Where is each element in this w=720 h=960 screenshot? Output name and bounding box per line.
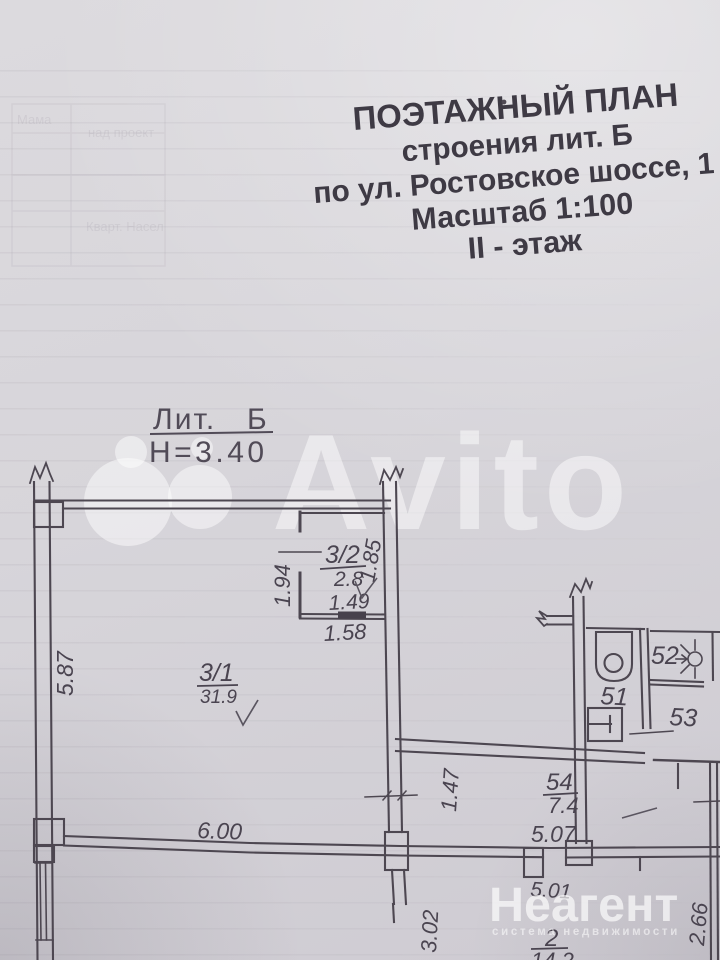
svg-text:7.4: 7.4: [548, 793, 579, 818]
svg-text:51: 51: [600, 682, 629, 711]
svg-text:1.49: 1.49: [328, 590, 370, 615]
svg-text:3.02: 3.02: [416, 909, 443, 953]
svg-text:Кварт. Насел: Кварт. Насел: [86, 219, 164, 234]
svg-text:2.66: 2.66: [684, 901, 713, 948]
svg-text:14.2: 14.2: [531, 948, 574, 960]
svg-text:Мама: Мама: [17, 112, 52, 127]
svg-text:31.9: 31.9: [200, 687, 237, 708]
svg-text:5.07: 5.07: [531, 821, 577, 847]
svg-text:5.87: 5.87: [52, 650, 78, 696]
svg-text:1.47: 1.47: [436, 767, 464, 812]
svg-text:Неагент: Неагент: [489, 878, 678, 932]
svg-text:Лит.: Лит.: [153, 403, 216, 436]
svg-text:Н=3.40: Н=3.40: [149, 436, 268, 469]
svg-text:1.58: 1.58: [323, 619, 368, 646]
svg-text:52: 52: [651, 642, 679, 670]
svg-text:3/2: 3/2: [325, 541, 360, 569]
svg-text:Б: Б: [247, 403, 269, 436]
svg-text:1.94: 1.94: [270, 564, 295, 607]
svg-text:II - этаж: II - этаж: [467, 223, 584, 265]
svg-text:система недвижимости: система недвижимости: [492, 926, 680, 938]
svg-text:53: 53: [669, 703, 698, 732]
svg-text:3/1: 3/1: [199, 659, 234, 687]
svg-text:54: 54: [546, 769, 573, 796]
svg-text:6.00: 6.00: [197, 817, 243, 845]
svg-text:над проект: над проект: [88, 125, 154, 140]
svg-text:Avito: Avito: [272, 406, 632, 558]
